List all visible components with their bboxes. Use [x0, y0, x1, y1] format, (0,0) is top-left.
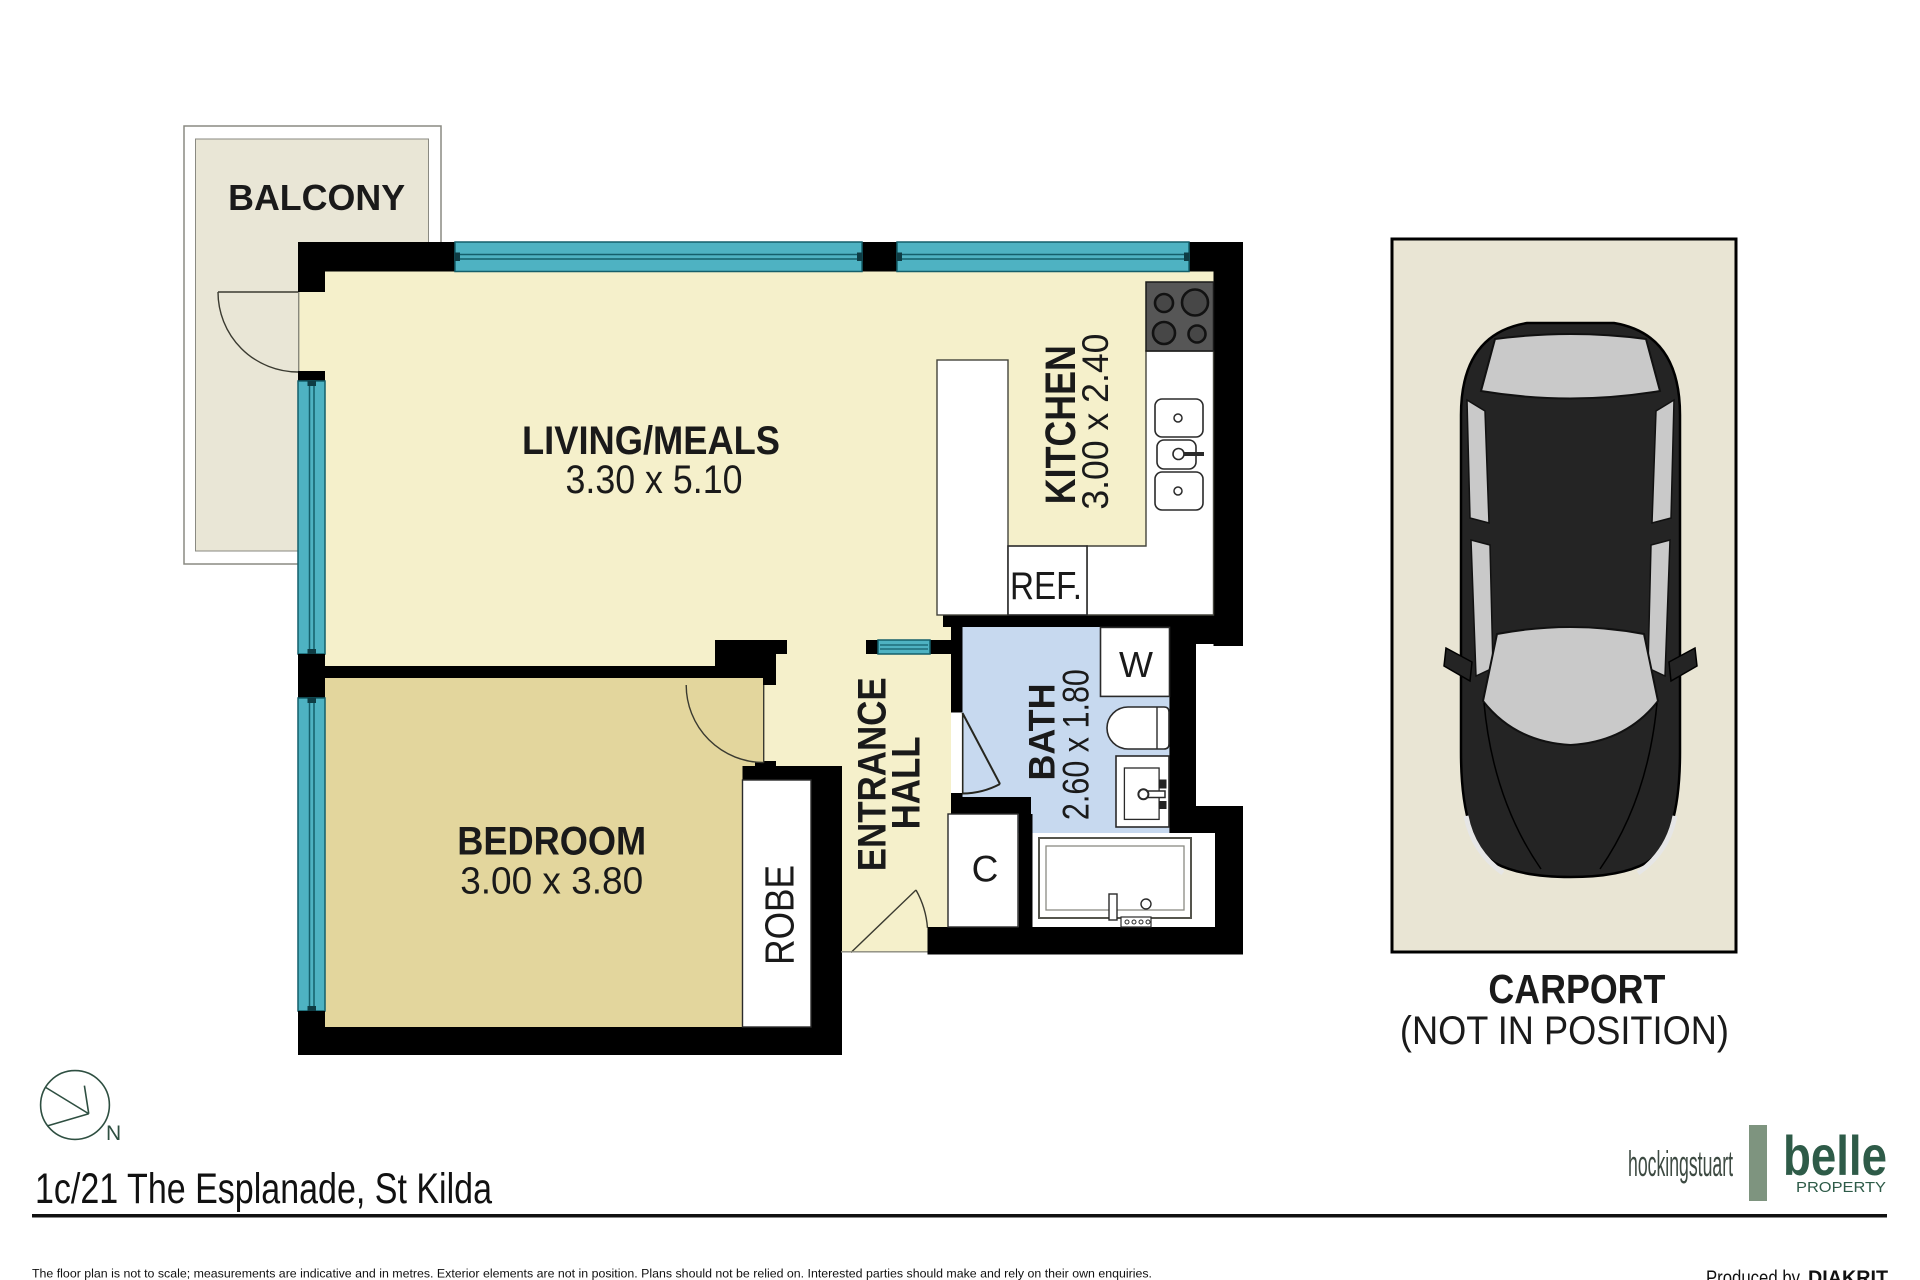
svg-text:3.30 x 5.10: 3.30 x 5.10 — [566, 458, 743, 502]
svg-text:2.60 x 1.80: 2.60 x 1.80 — [1056, 669, 1097, 820]
svg-text:BEDROOM: BEDROOM — [457, 820, 646, 864]
svg-text:Produced by: Produced by — [1706, 1268, 1800, 1280]
svg-text:W: W — [1119, 644, 1153, 685]
svg-text:belle: belle — [1783, 1124, 1887, 1187]
svg-text:C: C — [972, 849, 999, 890]
svg-text:DIAKRIT: DIAKRIT — [1808, 1268, 1888, 1280]
svg-text:LIVING/MEALS: LIVING/MEALS — [522, 419, 780, 463]
svg-text:(NOT IN POSITION): (NOT IN POSITION) — [1400, 1009, 1729, 1053]
svg-text:The floor plan is not to scale: The floor plan is not to scale; measurem… — [32, 1267, 1152, 1280]
svg-text:REF.: REF. — [1010, 565, 1082, 608]
svg-text:hockingstuart: hockingstuart — [1628, 1143, 1733, 1184]
svg-text:3.00 x 3.80: 3.00 x 3.80 — [460, 861, 643, 903]
svg-text:CARPORT: CARPORT — [1488, 966, 1665, 1012]
svg-text:1c/21 The Esplanade, St Kilda: 1c/21 The Esplanade, St Kilda — [35, 1165, 492, 1213]
svg-text:PROPERTY: PROPERTY — [1796, 1180, 1886, 1196]
svg-text:HALL: HALL — [885, 736, 929, 829]
svg-text:N: N — [106, 1122, 121, 1145]
svg-text:BALCONY: BALCONY — [228, 177, 405, 218]
svg-text:ROBE: ROBE — [756, 865, 802, 965]
svg-text:3.00 x 2.40: 3.00 x 2.40 — [1075, 334, 1116, 510]
